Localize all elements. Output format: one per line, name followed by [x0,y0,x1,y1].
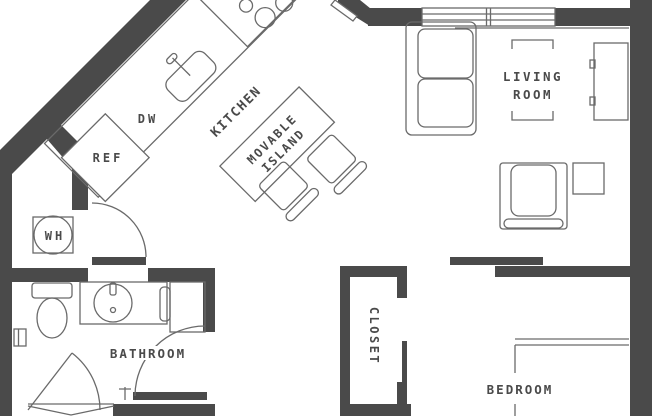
bathroom-label: BATHROOM [110,346,186,361]
wall-bath-top-left [12,268,88,282]
stove-burner [251,3,279,31]
stove-burner [272,0,296,15]
island-chair-2 [306,134,357,185]
water-heater-closet: WH [33,203,146,257]
closet-label: CLOSET [367,307,381,365]
wall-closet-stub-bottom [397,382,407,410]
wall-fixture [14,329,26,346]
vanity-counter [80,282,167,324]
shower [170,282,205,332]
kitchen-faucet-head [165,52,178,65]
water-heater-label: WH [45,229,65,243]
wall-top-left [368,8,422,26]
toilet-bowl [37,298,67,338]
wall-bath-bottom [113,404,215,416]
wall-bedroom-divider [495,266,652,277]
wall-top-right [555,8,630,26]
side-table [573,163,604,194]
armchair-back [504,219,563,228]
stove-burner [252,0,270,2]
armchair-cushion [511,165,556,216]
shower-glass [160,287,170,321]
bathroom-door-arc [135,326,205,396]
vanity-drain [111,308,116,313]
wall-closet-stub-top [397,266,407,298]
bifold-door [28,404,114,415]
window-frame [422,8,555,26]
floor-plan: KITCHEN MOVABLE ISLAND REF DW LIVING ROO… [0,0,652,416]
wall-left [0,150,12,416]
tv-console [594,43,628,120]
wall-closet-left [340,266,350,416]
floor-plan-svg: KITCHEN MOVABLE ISLAND REF DW LIVING ROO… [0,0,652,416]
vanity-faucet [110,283,116,295]
toilet-tank [32,283,72,298]
bathroom-door-leaf [133,392,207,400]
wh-door-leaf [92,257,146,265]
bed-headboard [515,339,629,345]
bath-corner-door-arc [72,353,100,410]
sofa-cushion [418,29,473,78]
door-stop-tick [119,387,131,400]
wh-door-arc [92,203,146,257]
wall-right [630,0,652,416]
vanity-sink [94,284,132,322]
stove-burner [237,0,255,15]
kitchen-label: KITCHEN [208,84,265,141]
bath-corner-door-leaf [28,353,72,410]
wall-closet-thin-right [402,341,407,383]
sofa-cushion [418,79,473,127]
bedroom-sliding-door [450,257,543,265]
dishwasher-label: DW [138,112,158,126]
living-room-label-line1: LIVING [503,69,563,84]
refrigerator-label: REF [93,151,124,165]
bedroom: BEDROOM [487,339,629,416]
living-room: LIVING ROOM [406,22,628,229]
kitchen-sink [163,48,220,105]
wall-closet-top [340,266,407,277]
bedroom-label: BEDROOM [487,382,554,397]
living-room-label-line2: ROOM [513,87,553,102]
walls [0,0,652,416]
